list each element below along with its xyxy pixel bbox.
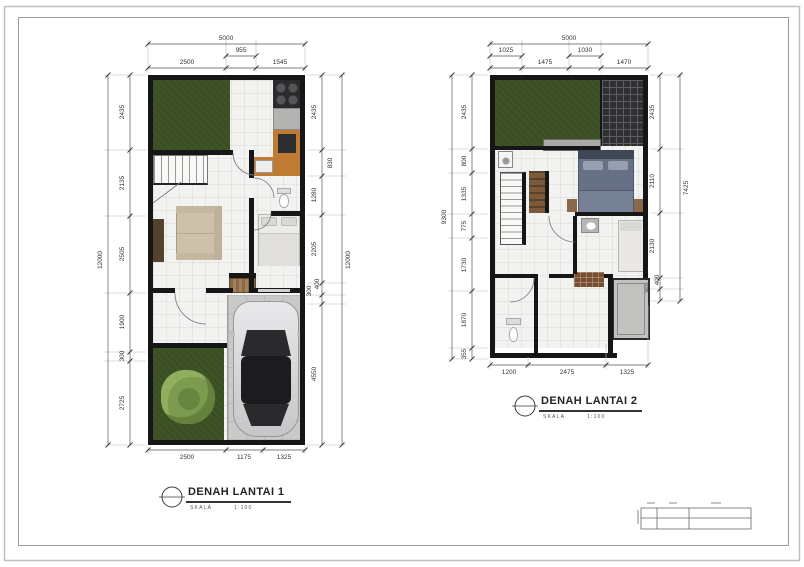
linework-overlay [0, 0, 804, 567]
dim-label: 1900 [120, 315, 127, 329]
title-block [638, 503, 751, 529]
sofa-armrest [176, 253, 214, 260]
blanket [259, 233, 299, 266]
plan2-title: DENAH LANTAI 2 [541, 395, 637, 407]
dim-label: 2505 [120, 247, 127, 261]
dim-label: 1730 [462, 258, 469, 272]
wall [534, 278, 538, 353]
plan1-front-garden [153, 80, 230, 150]
dim-label: 2435 [650, 105, 657, 119]
roof-garden [495, 80, 600, 146]
fridge-icon [273, 108, 301, 130]
plan1-scale-label: SKALA [190, 505, 212, 511]
dim-label: 1175 [237, 455, 251, 462]
sofa-cushion-line [177, 233, 214, 234]
car-roof [241, 356, 291, 404]
wall [575, 212, 643, 216]
dim-label: 1870 [462, 313, 469, 327]
dim-label: 830 [328, 158, 335, 169]
dim-label: 355 [462, 349, 469, 360]
wall [148, 75, 153, 445]
dim-label: 2205 [312, 242, 319, 256]
wall [249, 198, 254, 293]
tv-console [153, 219, 164, 262]
nightstand [567, 199, 577, 212]
wall [148, 440, 305, 445]
dim-label: 5000 [219, 36, 233, 43]
dim-label: 300 [120, 351, 127, 362]
pillow [261, 217, 277, 226]
wall [495, 274, 538, 278]
wardrobe [529, 171, 545, 213]
wall [573, 216, 577, 274]
dim-label: 1545 [273, 60, 287, 67]
wall [549, 274, 574, 278]
kitchen-sink-icon [255, 160, 273, 173]
dim-label: 9300 [442, 210, 449, 224]
tree-core [178, 388, 200, 410]
plan1-scale-value: 1:100 [234, 505, 253, 511]
pillow [583, 161, 603, 170]
window-band [258, 289, 290, 292]
roof-tiles [600, 80, 645, 146]
stove-icon [273, 80, 301, 108]
wall [249, 150, 254, 178]
inner-frame [19, 18, 789, 546]
car-windshield [241, 330, 291, 356]
dim-label: 4550 [312, 367, 319, 381]
pillow [281, 217, 297, 226]
dim-label: 1325 [620, 370, 634, 377]
car-mirror [228, 332, 235, 337]
plan2-scale-label: SKALA [543, 414, 565, 420]
pillow [620, 222, 642, 231]
plan1-stairs [153, 155, 208, 185]
vanity-sink-icon [581, 218, 599, 233]
dim-label: 12000 [346, 251, 353, 269]
dim-label: 2500 [180, 455, 194, 462]
dim-label: 1025 [499, 48, 513, 55]
wall [490, 75, 495, 358]
plan2-stairs [500, 172, 526, 245]
wall [300, 75, 305, 445]
dim-label: 1470 [617, 60, 631, 67]
dim-label: 12000 [98, 251, 105, 269]
headboard [578, 150, 634, 159]
dim-label: 2110 [650, 174, 657, 188]
dim-label: 2475 [560, 370, 574, 377]
dim-label: 1325 [277, 455, 291, 462]
dim-label: 400 [655, 275, 662, 286]
dim-label: 955 [236, 48, 247, 55]
balcony-railing [617, 283, 645, 335]
dim-label: 300 [307, 286, 314, 297]
garden-wall [148, 343, 227, 348]
dim-label: 2435 [462, 105, 469, 119]
blanket [579, 190, 633, 213]
oven-icon [278, 134, 296, 153]
dim-label: 775 [462, 221, 469, 232]
dim-label: 800 [462, 156, 469, 167]
toilet-icon [279, 194, 289, 208]
dim-label: 1475 [538, 60, 552, 67]
toilet-icon [509, 327, 518, 342]
dim-label: 2135 [120, 176, 127, 190]
dim-label: 1280 [312, 188, 319, 202]
nightstand [634, 199, 643, 212]
dim-label: 2725 [120, 396, 127, 410]
dim-label: 7425 [684, 181, 691, 195]
dim-label: 400 [315, 279, 322, 290]
dim-label: 350 [646, 283, 653, 294]
pillow [608, 161, 628, 170]
wall [490, 353, 617, 358]
sofa-armrest [176, 206, 214, 213]
floorplan-sheet: 5000 955 2500 1545 2500 1175 1325 12000 … [0, 0, 804, 567]
dim-label: 2435 [312, 105, 319, 119]
outer-frame [5, 7, 800, 561]
sofa-back [214, 206, 222, 260]
wall [148, 288, 175, 293]
wall [545, 171, 549, 213]
shoe-shelf [574, 272, 604, 287]
wall [229, 273, 256, 278]
dim-label: 2500 [180, 60, 194, 67]
wall [153, 150, 233, 155]
wall [495, 146, 600, 150]
dim-label: 2435 [120, 105, 127, 119]
dim-label: 1030 [578, 48, 592, 55]
plan1-title: DENAH LANTAI 1 [188, 486, 284, 498]
wall [608, 278, 613, 353]
dim-label: 1335 [462, 187, 469, 201]
plan2-scale-value: 1:100 [587, 414, 606, 420]
washer-icon [498, 151, 513, 168]
wall [206, 288, 233, 293]
wall [271, 211, 305, 216]
dim-label: 5000 [562, 36, 576, 43]
dim-label: 2130 [650, 239, 657, 253]
wall [148, 75, 305, 80]
toilet-icon [506, 318, 521, 325]
wall [490, 75, 648, 80]
dim-label: 1200 [502, 370, 516, 377]
wall [643, 75, 648, 278]
